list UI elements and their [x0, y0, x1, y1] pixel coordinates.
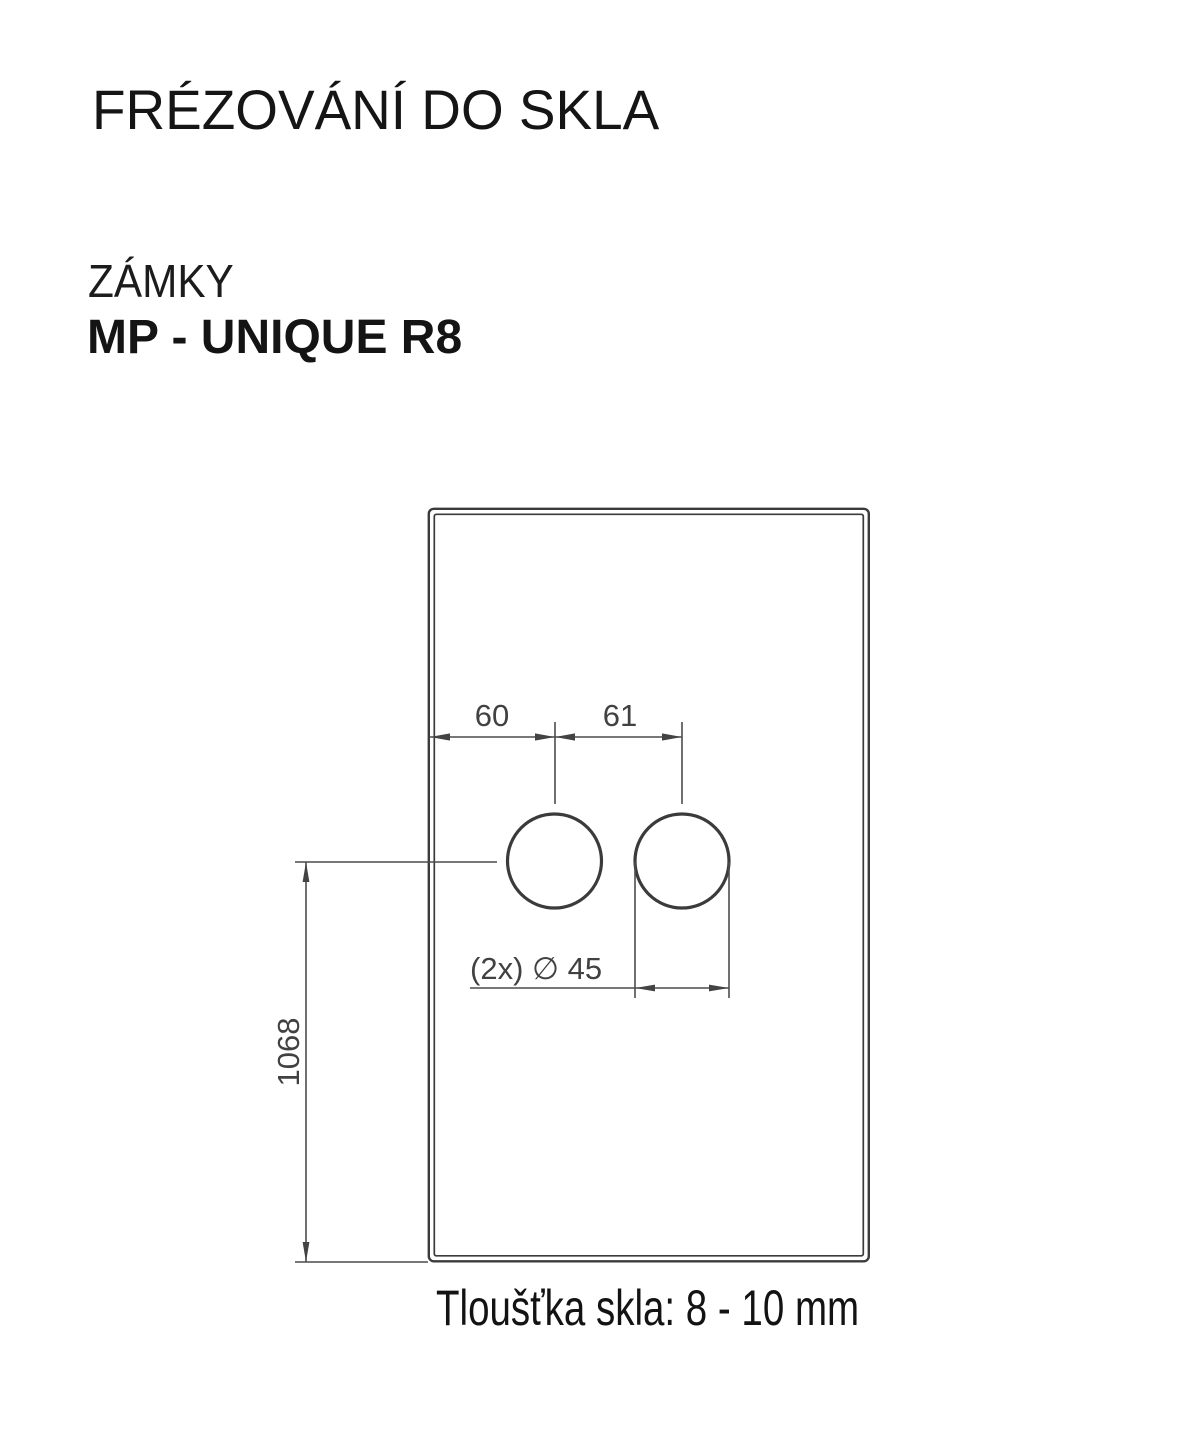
technical-drawing: 60 61 1068 (2x) ∅ 45 [0, 0, 1200, 1431]
dimension-label-61: 61 [603, 698, 637, 733]
glass-thickness-note: Tloušťka skla: 8 - 10 mm [436, 1283, 859, 1333]
arrowhead-left-edge [430, 733, 450, 740]
dimension-horizontal: 60 61 [430, 698, 682, 804]
dimension-label-60: 60 [475, 698, 509, 733]
arrowhead-bottom [303, 1242, 310, 1262]
dimension-vertical: 1068 [271, 862, 497, 1262]
hole-right [635, 814, 729, 908]
arrowhead-top [303, 862, 310, 882]
glass-panel-inner-edge [434, 514, 863, 1256]
milled-holes [508, 814, 730, 908]
arrowhead-diameter-left [635, 985, 655, 992]
dimension-label-diameter: (2x) ∅ 45 [470, 951, 602, 986]
glass-panel-outer-edge [429, 509, 869, 1262]
hole-left [508, 814, 602, 908]
dimension-diameter: (2x) ∅ 45 [470, 862, 729, 998]
glass-panel [429, 509, 869, 1262]
arrowhead-61-left [555, 733, 575, 740]
arrowhead-diameter-right [709, 985, 729, 992]
arrowhead-60-right [535, 733, 555, 740]
dimension-label-1068: 1068 [271, 1018, 306, 1087]
arrowhead-61-right [662, 733, 682, 740]
